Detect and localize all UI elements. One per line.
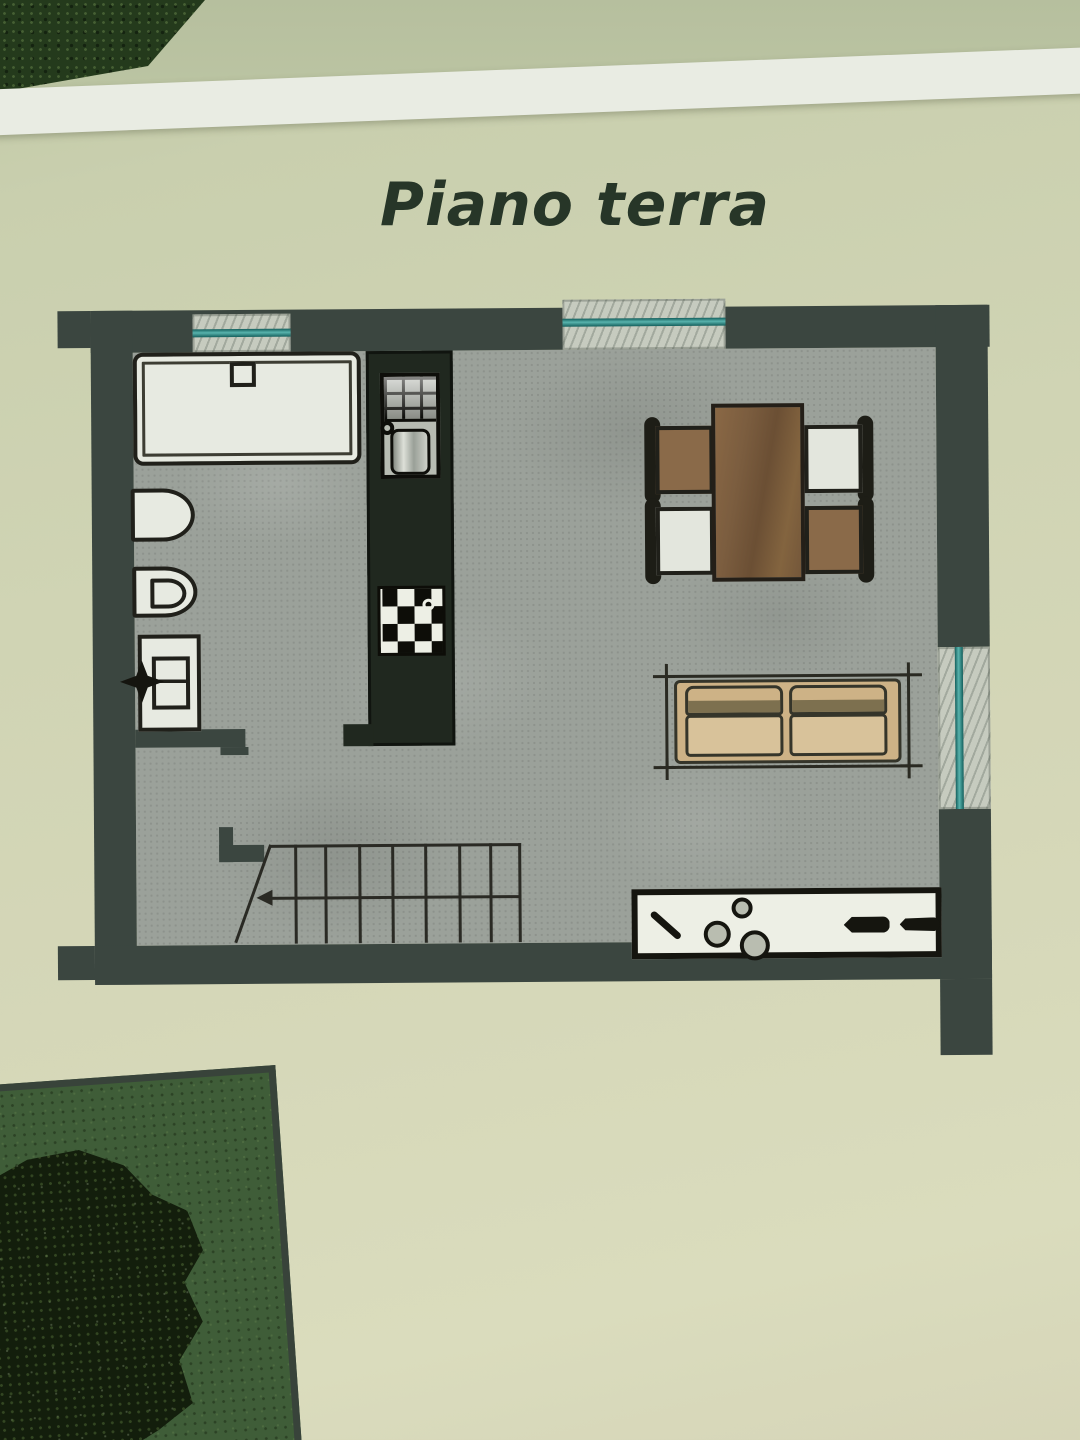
sofa-seat-cushion: [789, 714, 887, 757]
direction-arrow-icon: [256, 890, 272, 906]
sink-basin-icon: [390, 429, 430, 475]
floor-plan: [57, 289, 1002, 1076]
cooktop-knob-icon: [422, 599, 434, 611]
window-glass-icon: [193, 329, 291, 338]
washbasin-icon: [131, 488, 195, 541]
page-title: Piano terra: [105, 170, 1045, 240]
frame-tick: [908, 756, 911, 778]
sofa-back-cushion: [685, 685, 783, 716]
window-top-center: [562, 299, 725, 350]
sofa-seat-cushion: [685, 714, 783, 757]
stair-edge: [269, 843, 521, 848]
frame-tick: [653, 675, 675, 678]
bathtub-faucet-icon: [230, 362, 256, 387]
dining-table-icon: [711, 403, 805, 582]
toilet-icon: [132, 566, 197, 617]
garden-lawn: [0, 1065, 305, 1440]
knife-icon: [649, 910, 682, 940]
stair-tread: [391, 844, 395, 943]
sink-drainer-grid-icon: [384, 377, 436, 422]
window-glass-icon: [562, 318, 725, 327]
cooktop-icon: [377, 586, 445, 656]
window-top-left: [192, 314, 290, 353]
dining-chair: [804, 425, 862, 493]
wall-right-lower: [939, 809, 992, 979]
bottle-icon: [900, 917, 940, 931]
window-right: [938, 647, 991, 809]
tree-icon: [0, 1142, 217, 1440]
wall-right-upper: [935, 305, 989, 647]
frame-tick: [900, 673, 922, 676]
wall-stub-bottom-right: [940, 979, 993, 1055]
staircase: [256, 843, 522, 946]
bathroom-partition-notch: [220, 747, 248, 755]
frame-tick: [665, 664, 668, 686]
sofa-icon: [665, 665, 911, 777]
wall-stub-top-left: [57, 311, 90, 348]
toilet-bowl-icon: [150, 578, 186, 608]
wall-stub-bottom-left: [58, 946, 95, 980]
plate-icon: [740, 930, 770, 960]
dining-chair: [655, 426, 713, 494]
stair-tread: [489, 843, 493, 942]
stair-tread: [424, 844, 428, 943]
sideboard-icon: [631, 887, 941, 959]
sink-tap-icon: [380, 421, 394, 435]
kitchen-counter-foot: [343, 724, 373, 746]
stair-tread: [324, 844, 328, 943]
kitchen-sink-icon: [380, 373, 441, 479]
stair-tread: [294, 845, 298, 944]
wall-left: [90, 311, 137, 980]
dining-chair: [656, 507, 714, 575]
window-glass-icon: [955, 647, 964, 809]
plate-icon: [704, 921, 731, 948]
stair-tread: [358, 844, 362, 943]
sofa-back-cushion: [789, 685, 887, 716]
photo-of-floor-plan: { "title": "Piano terra", "colors": { "p…: [0, 0, 1080, 1440]
stair-tread: [458, 843, 462, 942]
bottle-icon: [844, 916, 890, 932]
bathroom-partition-wall: [135, 729, 245, 748]
frame-tick: [901, 764, 923, 767]
sofa-body: [674, 678, 902, 764]
frame-tick: [666, 758, 669, 780]
plate-icon: [732, 897, 753, 918]
dining-chair: [805, 506, 863, 574]
frame-tick: [907, 662, 910, 684]
